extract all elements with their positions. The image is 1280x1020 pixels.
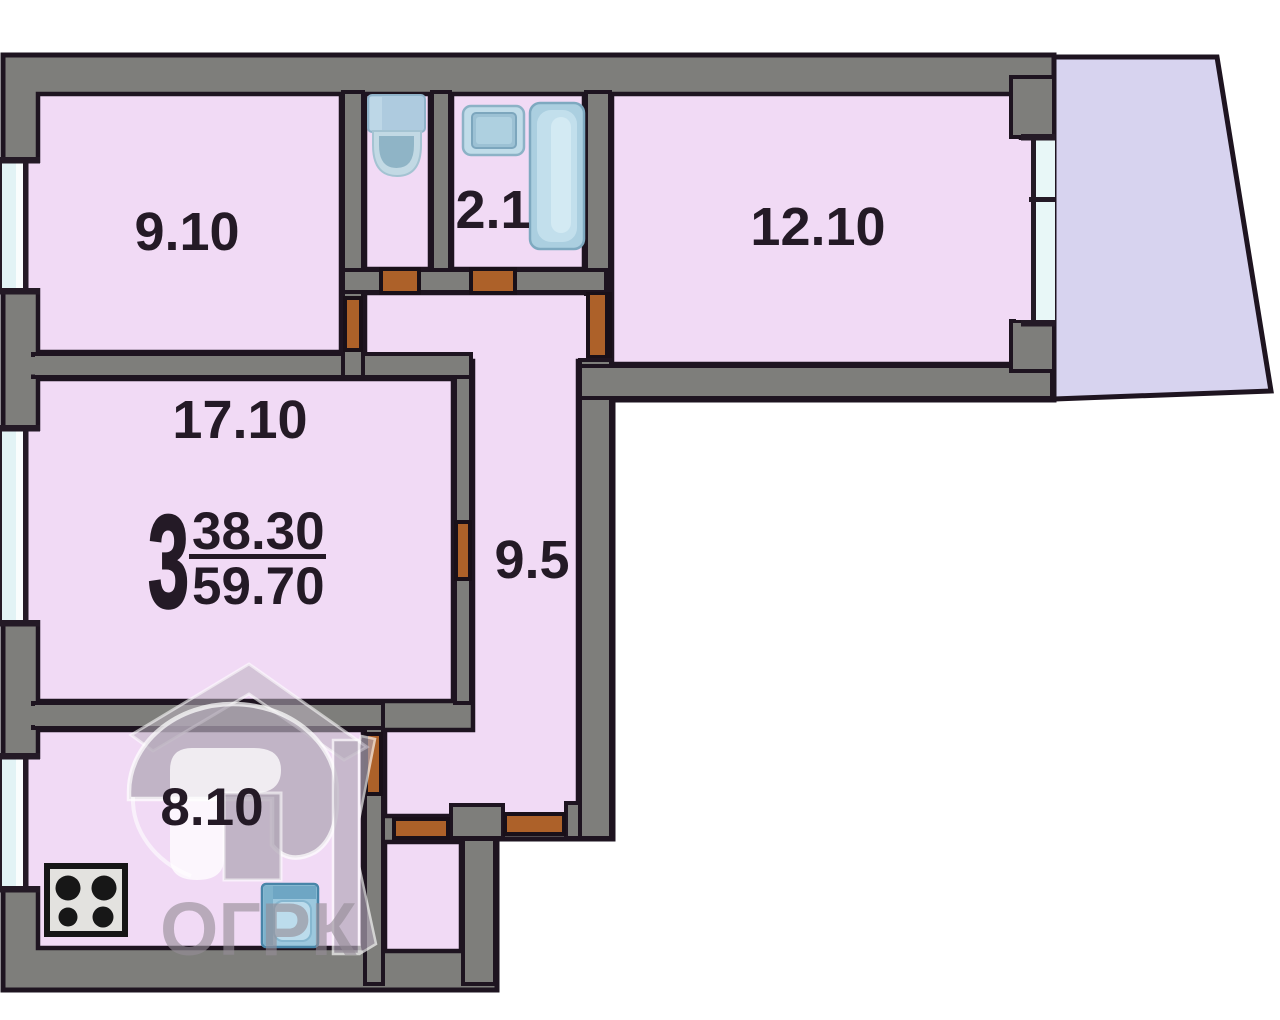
- svg-text:17.10: 17.10: [172, 390, 307, 450]
- svg-text:ОГРК: ОГРК: [160, 887, 357, 971]
- svg-text:12.10: 12.10: [750, 197, 885, 257]
- svg-text:2.1: 2.1: [455, 180, 530, 240]
- svg-text:3: 3: [148, 487, 189, 635]
- svg-text:38.30: 38.30: [192, 502, 325, 561]
- svg-text:59.70: 59.70: [192, 557, 325, 616]
- svg-text:8.10: 8.10: [160, 778, 263, 837]
- svg-text:9.5: 9.5: [494, 530, 569, 590]
- svg-text:9.10: 9.10: [134, 202, 239, 262]
